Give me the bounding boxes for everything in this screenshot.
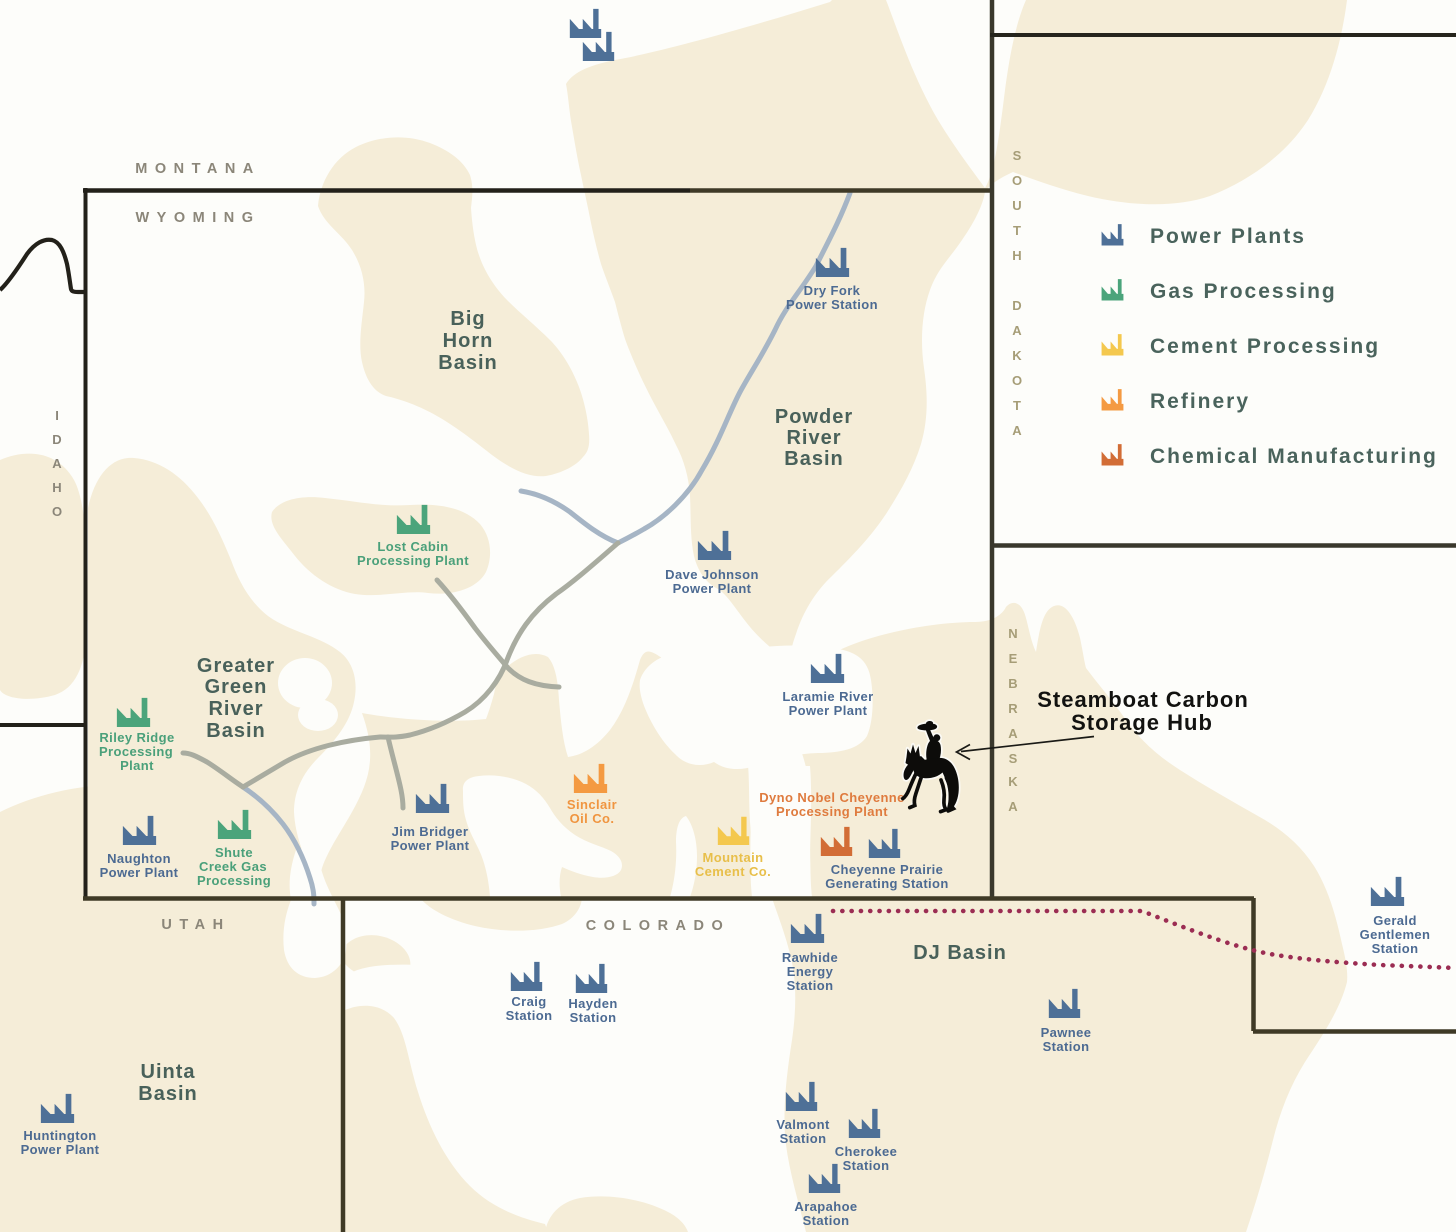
svg-text:Processing: Processing [197, 873, 271, 888]
svg-text:Green: Green [205, 676, 268, 698]
svg-text:Creek Gas: Creek Gas [199, 859, 267, 874]
svg-text:Rawhide: Rawhide [782, 950, 838, 965]
svg-text:S: S [1009, 751, 1018, 766]
svg-text:Power Plants: Power Plants [1150, 225, 1306, 248]
svg-text:Cement Processing: Cement Processing [1150, 335, 1380, 358]
svg-text:Jim Bridger: Jim Bridger [392, 824, 469, 839]
svg-text:A: A [1008, 799, 1018, 814]
svg-text:Lost Cabin: Lost Cabin [377, 539, 448, 554]
svg-text:Station: Station [787, 978, 834, 993]
svg-text:A: A [52, 456, 62, 471]
svg-text:D: D [52, 432, 61, 447]
svg-text:Cherokee: Cherokee [835, 1144, 897, 1159]
svg-text:Power Plant: Power Plant [789, 703, 868, 718]
svg-text:MONTANA: MONTANA [135, 161, 261, 177]
svg-text:Basin: Basin [138, 1083, 197, 1105]
svg-text:DJ Basin: DJ Basin [913, 942, 1007, 964]
svg-text:Hayden: Hayden [568, 996, 617, 1011]
svg-text:Huntington: Huntington [23, 1128, 96, 1143]
svg-text:Chemical Manufacturing: Chemical Manufacturing [1150, 445, 1438, 468]
svg-text:Horn: Horn [443, 330, 494, 352]
svg-text:Station: Station [803, 1213, 850, 1228]
svg-text:Greater: Greater [197, 655, 275, 677]
svg-text:Station: Station [780, 1131, 827, 1146]
svg-text:O: O [52, 504, 62, 519]
svg-text:Basin: Basin [784, 448, 843, 470]
svg-text:E: E [1009, 651, 1018, 666]
svg-text:Power Plant: Power Plant [391, 838, 470, 853]
svg-text:Uinta: Uinta [141, 1061, 196, 1083]
svg-text:COLORADO: COLORADO [586, 918, 731, 934]
svg-text:Cement Co.: Cement Co. [695, 864, 771, 879]
svg-text:Big: Big [450, 308, 485, 330]
svg-text:O: O [1012, 173, 1022, 188]
svg-text:Basin: Basin [438, 352, 497, 374]
svg-text:Storage Hub: Storage Hub [1071, 710, 1213, 735]
svg-text:Gas Processing: Gas Processing [1150, 280, 1337, 303]
svg-text:H: H [1012, 248, 1021, 263]
svg-text:Arapahoe: Arapahoe [794, 1199, 857, 1214]
svg-text:Processing: Processing [99, 744, 173, 759]
svg-text:Cheyenne Prairie: Cheyenne Prairie [831, 862, 944, 877]
svg-text:I: I [55, 408, 59, 423]
svg-text:Shute: Shute [215, 845, 253, 860]
svg-text:Generating Station: Generating Station [825, 876, 949, 891]
svg-text:N: N [1008, 626, 1017, 641]
svg-text:Power Plant: Power Plant [21, 1142, 100, 1157]
svg-text:Refinery: Refinery [1150, 390, 1250, 413]
svg-text:Plant: Plant [120, 758, 154, 773]
svg-text:Dave Johnson: Dave Johnson [665, 567, 759, 582]
svg-text:O: O [1012, 373, 1022, 388]
svg-text:R: R [1008, 701, 1018, 716]
svg-text:Power Station: Power Station [786, 297, 878, 312]
svg-text:D: D [1012, 298, 1021, 313]
svg-text:Energy: Energy [787, 964, 834, 979]
svg-text:River: River [786, 427, 841, 449]
svg-text:Riley Ridge: Riley Ridge [99, 730, 174, 745]
svg-text:K: K [1008, 774, 1018, 789]
svg-text:K: K [1012, 348, 1022, 363]
svg-text:Naughton: Naughton [107, 851, 171, 866]
svg-text:U: U [1012, 198, 1021, 213]
svg-text:Station: Station [506, 1008, 553, 1023]
svg-text:A: A [1012, 323, 1022, 338]
svg-text:Oil Co.: Oil Co. [570, 811, 615, 826]
svg-text:Laramie River: Laramie River [782, 689, 873, 704]
svg-text:Powder: Powder [775, 406, 853, 428]
svg-text:Station: Station [570, 1010, 617, 1025]
svg-text:Dry Fork: Dry Fork [804, 283, 861, 298]
svg-text:Processing Plant: Processing Plant [776, 804, 888, 819]
svg-text:T: T [1013, 223, 1021, 238]
svg-text:Basin: Basin [206, 720, 265, 742]
svg-text:UTAH: UTAH [161, 917, 230, 933]
svg-text:S: S [1013, 148, 1022, 163]
svg-text:River: River [208, 698, 263, 720]
svg-text:T: T [1013, 398, 1021, 413]
svg-text:B: B [1008, 676, 1017, 691]
svg-text:H: H [52, 480, 61, 495]
svg-text:Station: Station [1043, 1039, 1090, 1054]
svg-text:A: A [1012, 423, 1022, 438]
svg-text:Mountain: Mountain [703, 850, 764, 865]
svg-text:A: A [1008, 726, 1018, 741]
svg-text:Dyno Nobel Cheyenne: Dyno Nobel Cheyenne [759, 790, 905, 805]
svg-text:Gerald: Gerald [1373, 913, 1417, 928]
svg-text:Power Plant: Power Plant [673, 581, 752, 596]
svg-text:Steamboat Carbon: Steamboat Carbon [1037, 687, 1249, 712]
svg-text:Station: Station [843, 1158, 890, 1173]
svg-text:Valmont: Valmont [776, 1117, 830, 1132]
svg-text:Station: Station [1372, 941, 1419, 956]
svg-text:WYOMING: WYOMING [136, 210, 261, 226]
svg-text:Craig: Craig [511, 994, 546, 1009]
svg-text:Power Plant: Power Plant [100, 865, 179, 880]
svg-text:Sinclair: Sinclair [567, 797, 617, 812]
svg-text:Pawnee: Pawnee [1041, 1025, 1092, 1040]
svg-text:Gentlemen: Gentlemen [1360, 927, 1431, 942]
svg-text:Processing Plant: Processing Plant [357, 553, 469, 568]
